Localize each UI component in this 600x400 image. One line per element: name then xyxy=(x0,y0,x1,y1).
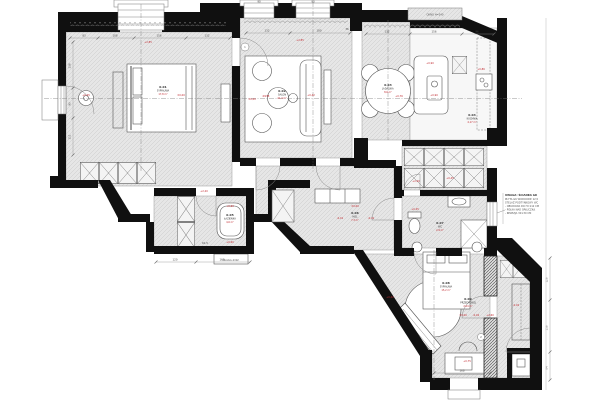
side-note-line: PŁYTA GK WODOODP. 12,5 xyxy=(505,197,539,201)
kitchen-cabinet xyxy=(424,148,444,166)
level-mark: -0,01 xyxy=(368,216,375,220)
window-4 xyxy=(58,86,66,114)
room-tag-living: 0.02 SALON 21,4 m² xyxy=(277,89,286,100)
dim-label: 156 xyxy=(157,34,162,38)
wardrobe-box xyxy=(118,162,137,184)
sofa xyxy=(300,60,321,136)
level-mark: +0,75 xyxy=(463,359,471,363)
side-table xyxy=(289,94,298,103)
svg-text:0.01: 0.01 xyxy=(159,85,166,89)
wc-closet xyxy=(512,354,530,376)
dim-label: 120 xyxy=(173,258,178,262)
level-mark: +0,76 xyxy=(395,94,403,98)
floor-plan-canvas: 83 108 156 132 138 90 111 132 180 132 15… xyxy=(0,0,600,400)
washer-label: PRALKA+SUSZ. xyxy=(223,259,240,262)
level-mark: ±0,00 xyxy=(177,93,185,97)
svg-text:21,4 m²: 21,4 m² xyxy=(277,97,286,100)
closet-box xyxy=(424,168,444,188)
svg-text:2,04 m²: 2,04 m² xyxy=(463,305,472,308)
level-mark: +0,45 xyxy=(82,93,90,97)
insulation-wavy xyxy=(70,22,226,26)
level-mark: +2,20 xyxy=(412,179,420,183)
dim-label: 126 xyxy=(545,277,549,282)
svg-text:8,6 m²: 8,6 m² xyxy=(384,91,392,94)
level-mark: +0,42 xyxy=(386,295,394,299)
armchair xyxy=(253,114,272,133)
cooktop xyxy=(476,74,492,90)
dim-label: 132 xyxy=(385,30,390,34)
armchair xyxy=(253,62,272,81)
level-mark: ±0,00 xyxy=(248,97,256,101)
dim-label: 84 xyxy=(545,366,549,370)
insulation-wavy xyxy=(364,24,460,28)
svg-text:15,2 m²: 15,2 m² xyxy=(441,289,450,292)
dim-label: 90 xyxy=(68,102,72,106)
kitchen-cabinet xyxy=(444,148,464,166)
bath-cabinet xyxy=(177,196,195,222)
level-mark: +0,60 xyxy=(226,240,234,244)
side-note-line: - REWIZJA 30×30 CM xyxy=(505,211,531,215)
svg-text:0.07: 0.07 xyxy=(436,221,443,225)
level-mark: +2,20 xyxy=(200,189,208,193)
svg-text:17,8 m²: 17,8 m² xyxy=(158,93,167,96)
svg-text:0.03: 0.03 xyxy=(384,83,391,87)
dim-label: 138 xyxy=(68,63,72,68)
level-mark: +2,85 xyxy=(144,40,152,44)
entry-threshold xyxy=(448,390,480,399)
balcony-door-bay xyxy=(42,80,58,120)
svg-text:0.02: 0.02 xyxy=(278,89,285,93)
level-mark: +2,85 xyxy=(296,38,304,42)
level-mark: ±0,00 xyxy=(351,204,359,208)
svg-text:0.09: 0.09 xyxy=(464,297,471,301)
dim-label: 36 xyxy=(345,27,349,31)
side-note-line: - OBUDOWA DO H=112 CM xyxy=(505,204,539,208)
level-mark: +0,90 xyxy=(426,61,434,65)
level-mark: +0,42 xyxy=(307,93,315,97)
insulation-wavy xyxy=(244,19,348,23)
svg-text:0.08: 0.08 xyxy=(442,281,449,285)
console-table xyxy=(324,70,331,124)
svg-text:4,6 m²: 4,6 m² xyxy=(226,221,234,224)
level-mark: +0,45 xyxy=(446,176,454,180)
pillow xyxy=(449,255,467,263)
level-mark: +0,90 xyxy=(430,93,438,97)
dim-label: 83 xyxy=(82,34,86,38)
side-note-title: UWAGA: ŚCIANKA GK xyxy=(505,192,538,197)
note-leader xyxy=(497,210,505,213)
svg-text:4,17 m²: 4,17 m² xyxy=(467,121,476,124)
dim-label: 156 xyxy=(432,30,437,34)
dim-label: 168 xyxy=(460,369,465,373)
appliance-box xyxy=(452,56,467,74)
level-mark: +2,60 xyxy=(486,313,494,317)
dim-label: 180 xyxy=(317,29,322,33)
bath-cabinet xyxy=(177,222,195,248)
level-mark: +0,86 xyxy=(477,67,485,71)
tv-console xyxy=(221,84,230,122)
nightstand-left xyxy=(79,91,94,106)
svg-text:7,3 m²: 7,3 m² xyxy=(351,219,359,222)
dim-label: 90 xyxy=(311,0,315,4)
dim-label: 132 xyxy=(205,34,210,38)
dim-label: 111 xyxy=(68,134,72,139)
level-mark: +0,60 xyxy=(226,204,234,208)
pillow xyxy=(133,97,142,124)
wardrobe-box xyxy=(137,162,156,184)
svg-text:0.05: 0.05 xyxy=(226,213,233,217)
kitchen-cabinet xyxy=(404,148,424,166)
level-mark: -0,02 xyxy=(473,313,480,317)
dim-label: 61,5 xyxy=(202,241,208,245)
sideboard xyxy=(315,189,360,203)
closet-box xyxy=(464,168,484,188)
dim-label: 108 xyxy=(113,34,118,38)
level-mark: +0,45 xyxy=(411,207,419,211)
nightstand xyxy=(472,242,482,252)
furniture-hall xyxy=(315,189,360,203)
level-mark: -0,02 xyxy=(513,303,520,307)
washbasin-counter xyxy=(448,196,470,207)
kitchen-cabinet xyxy=(464,148,484,166)
toilet-tank xyxy=(408,212,421,218)
dim-label: 90 xyxy=(257,0,261,4)
svg-text:2,9 m²: 2,9 m² xyxy=(436,229,444,232)
window-5 xyxy=(487,202,497,226)
closet-box xyxy=(404,168,424,188)
window-2 xyxy=(244,3,274,18)
pillow xyxy=(133,68,142,95)
top-note-label: OKNO H=240 xyxy=(427,13,444,17)
svg-text:0.04: 0.04 xyxy=(468,113,475,117)
svg-text:0.06: 0.06 xyxy=(351,211,358,215)
dim-label: 132 xyxy=(265,29,270,33)
level-mark: ±0,00 xyxy=(459,313,467,317)
dim-label: 96 xyxy=(475,30,479,34)
toilet xyxy=(409,219,420,234)
dim-label: 156 xyxy=(545,325,549,330)
level-mark: -0,01 xyxy=(337,216,344,220)
